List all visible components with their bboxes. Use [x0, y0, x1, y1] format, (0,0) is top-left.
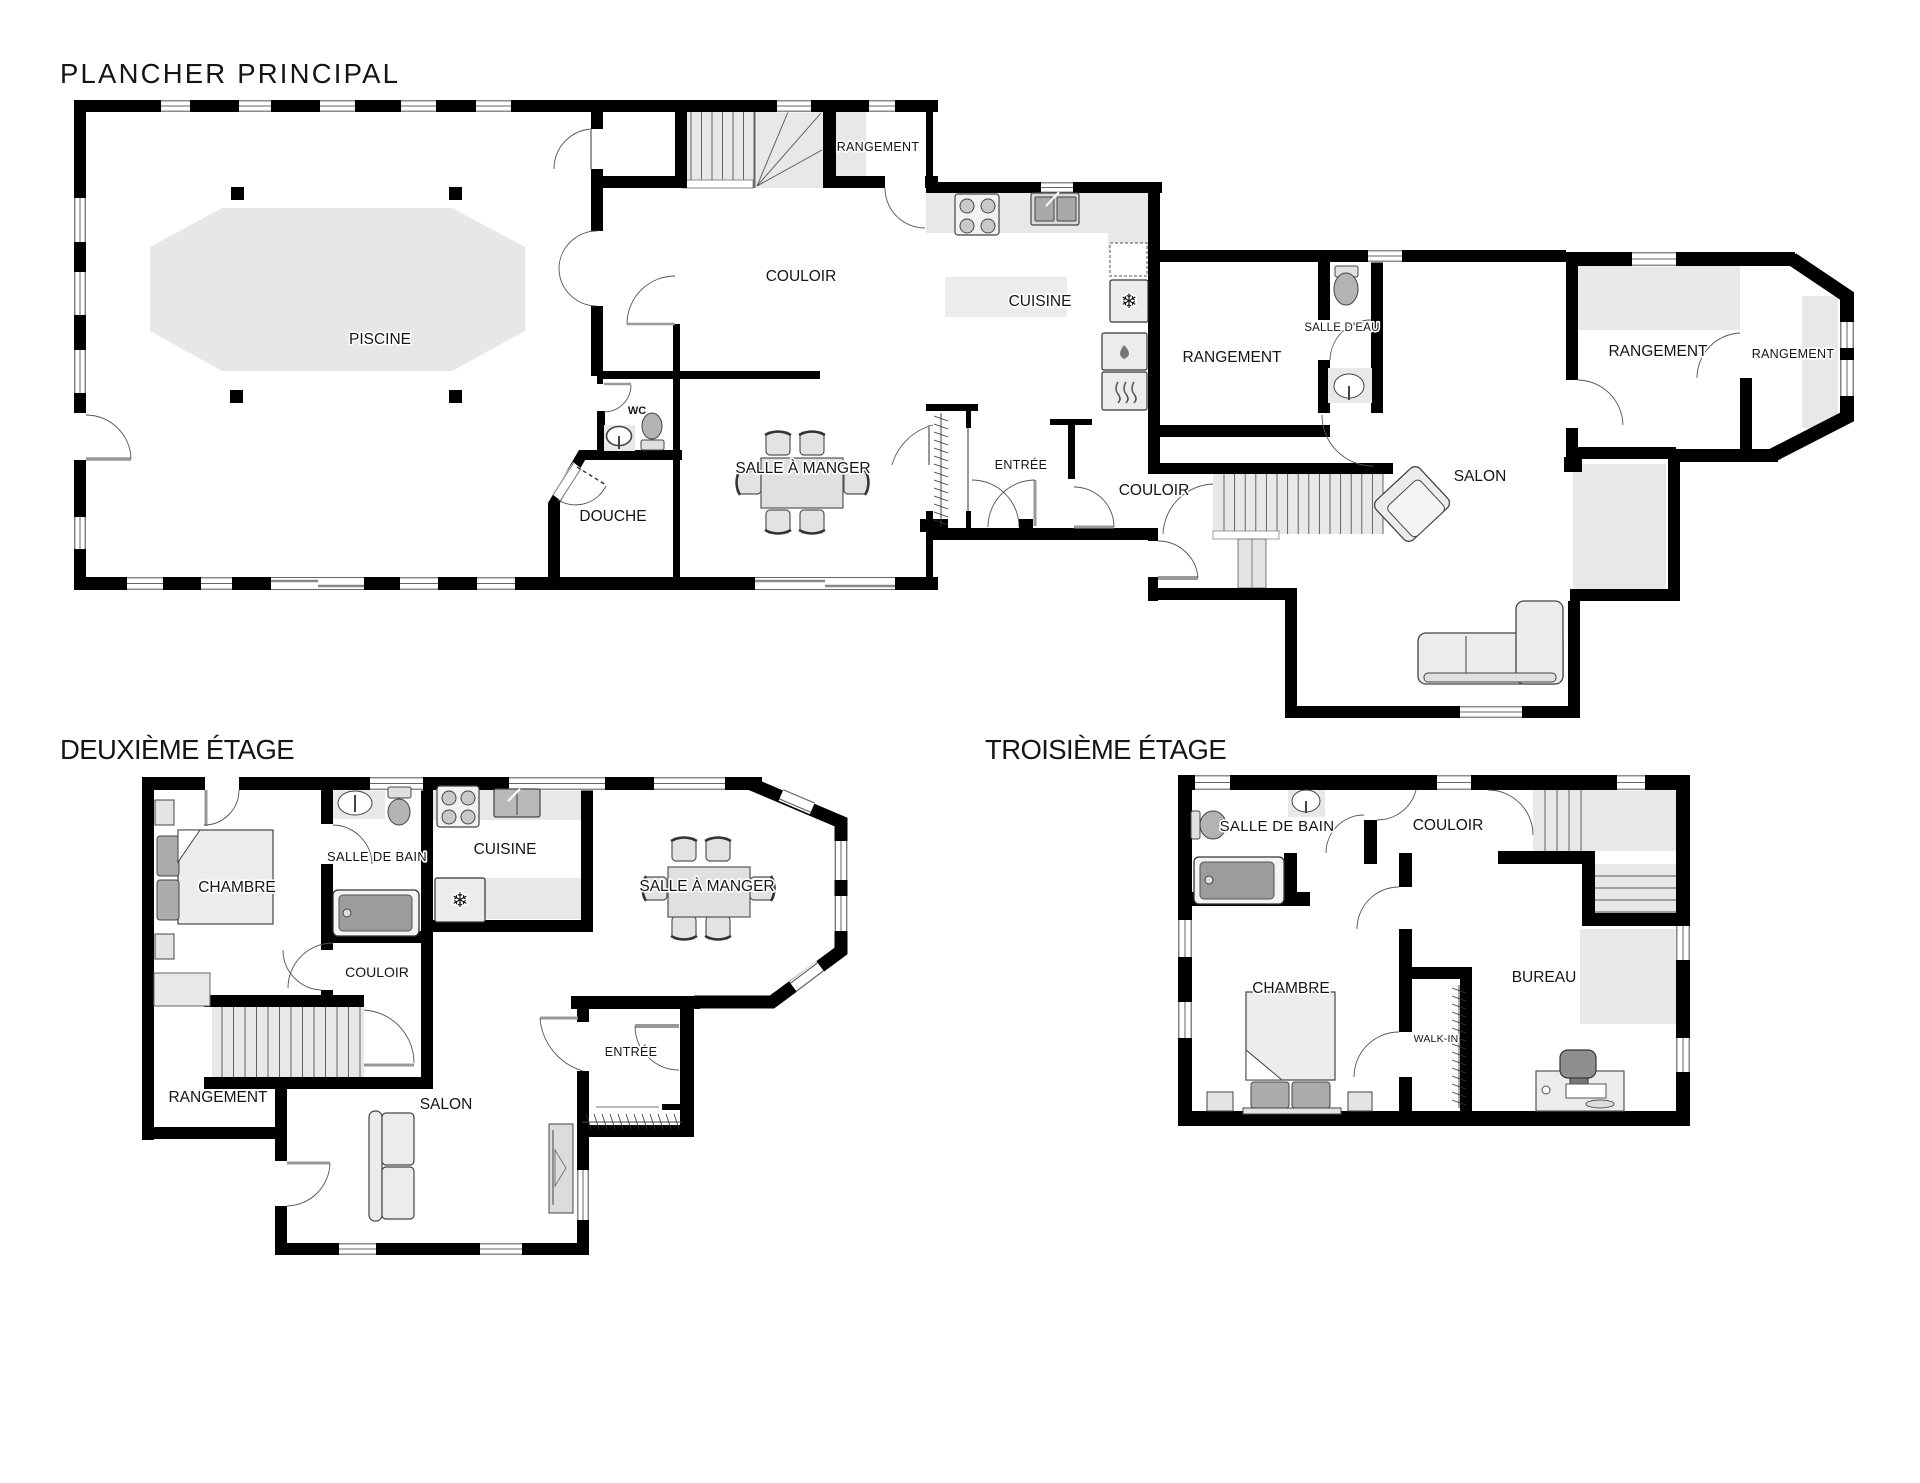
svg-text:CUISINE: CUISINE [1009, 293, 1072, 310]
svg-text:RANGEMENT: RANGEMENT [1182, 349, 1282, 366]
svg-text:RANGEMENT: RANGEMENT [168, 1089, 268, 1106]
svg-text:COULOIR: COULOIR [345, 964, 409, 980]
svg-text:CHAMBRE: CHAMBRE [198, 879, 276, 896]
svg-text:COULOIR: COULOIR [766, 268, 837, 285]
svg-text:PLANCHER PRINCIPAL: PLANCHER PRINCIPAL [60, 58, 400, 89]
svg-text:SALON: SALON [420, 1096, 473, 1113]
svg-text:RANGEMENT: RANGEMENT [1752, 347, 1835, 361]
svg-text:SALLE DE BAIN: SALLE DE BAIN [327, 849, 427, 864]
svg-text:SALON: SALON [1454, 468, 1507, 485]
svg-text:DEUXIÈME ÉTAGE: DEUXIÈME ÉTAGE [60, 734, 294, 765]
svg-text:SALLE À MANGER: SALLE À MANGER [639, 878, 774, 895]
svg-text:COULOIR: COULOIR [1119, 482, 1190, 499]
svg-text:SALLE D'EAU: SALLE D'EAU [1304, 322, 1379, 334]
svg-text:RANGEMENT: RANGEMENT [837, 140, 920, 154]
svg-text:SALLE DE BAIN: SALLE DE BAIN [1220, 818, 1335, 835]
svg-text:TROISIÈME ÉTAGE: TROISIÈME ÉTAGE [985, 734, 1226, 765]
svg-text:❄: ❄ [1121, 291, 1138, 313]
svg-text:PISCINE: PISCINE [349, 331, 411, 348]
svg-text:COULOIR: COULOIR [1413, 817, 1484, 834]
svg-text:DOUCHE: DOUCHE [579, 508, 646, 525]
svg-text:BUREAU: BUREAU [1512, 969, 1577, 986]
svg-text:RANGEMENT: RANGEMENT [1608, 343, 1708, 360]
svg-text:SALLE À MANGER: SALLE À MANGER [735, 460, 870, 477]
svg-text:WALK-IN: WALK-IN [1414, 1033, 1459, 1045]
svg-text:WC: WC [628, 405, 646, 417]
svg-text:ENTRÉE: ENTRÉE [605, 1044, 658, 1059]
svg-text:CHAMBRE: CHAMBRE [1252, 980, 1330, 997]
svg-text:❄: ❄ [452, 890, 469, 912]
svg-text:ENTRÉE: ENTRÉE [995, 457, 1048, 472]
svg-text:CUISINE: CUISINE [474, 841, 537, 858]
